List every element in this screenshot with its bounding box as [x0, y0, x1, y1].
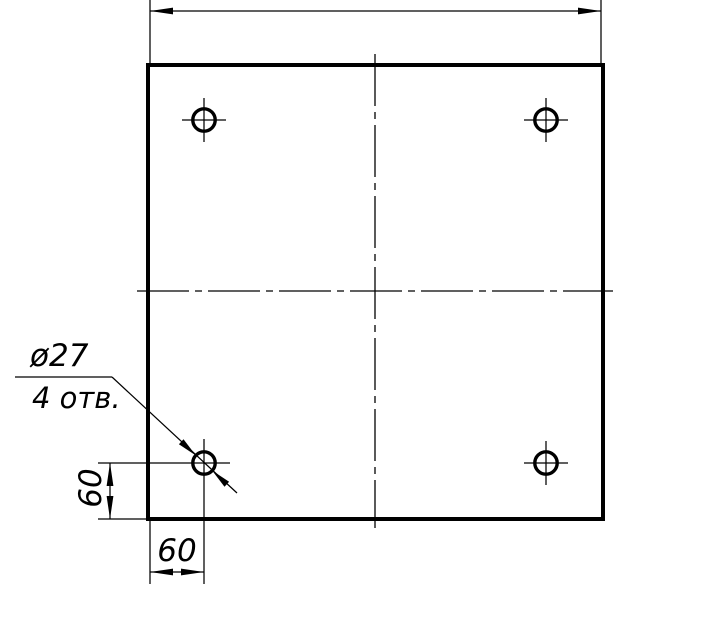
- drawing-sheet: ø27 4 отв. 60 60: [0, 0, 713, 631]
- arrowhead-upper-icon: [179, 439, 196, 455]
- arrowhead-left-icon: [150, 8, 173, 15]
- hole-bottom-right: [524, 441, 568, 485]
- arrowhead-right-icon: [181, 569, 204, 576]
- hole-count-label: 4 отв.: [32, 381, 121, 415]
- vertical-offset-dimension: 60: [73, 463, 148, 519]
- arrowhead-lower-icon: [212, 471, 229, 487]
- engineering-drawing: ø27 4 отв. 60 60: [0, 0, 713, 631]
- horizontal-offset-dimension: 60: [150, 521, 204, 584]
- hole-top-left: [182, 98, 226, 142]
- horizontal-offset-value: 60: [157, 533, 196, 569]
- vertical-offset-value: 60: [73, 468, 109, 507]
- plate-center-lines: [137, 54, 613, 528]
- hole-top-right: [524, 98, 568, 142]
- overall-width-dimension: [150, 0, 601, 63]
- arrowhead-left-icon: [150, 569, 173, 576]
- arrowhead-right-icon: [578, 8, 601, 15]
- hole-diameter-label: ø27: [29, 338, 89, 374]
